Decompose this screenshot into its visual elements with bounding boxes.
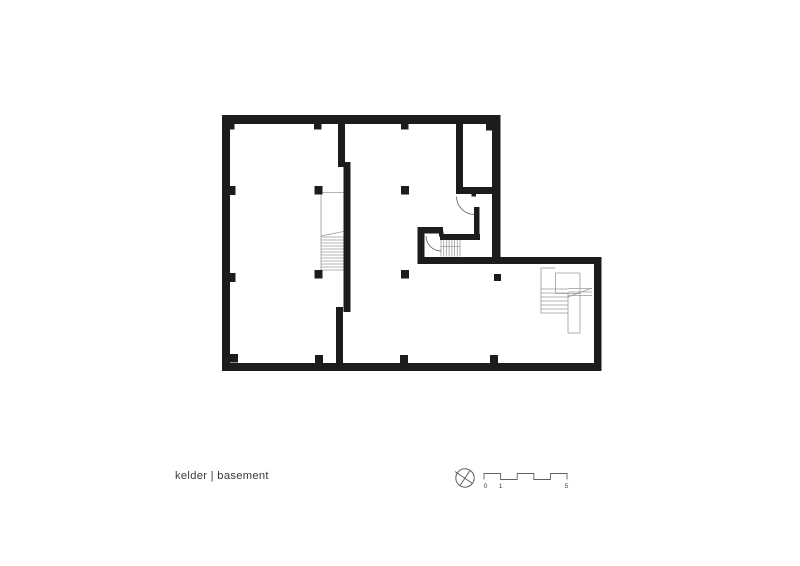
column [401, 121, 409, 130]
column [315, 355, 323, 363]
column [494, 274, 501, 281]
column [230, 354, 238, 363]
north-symbol-crossline [460, 471, 470, 486]
column [401, 270, 409, 279]
column [314, 121, 322, 130]
drawing-sheet: 0 1 5 kelder | basement [0, 0, 800, 566]
drawing-title: kelder | basement [175, 470, 269, 482]
wall [336, 307, 343, 371]
wall [440, 234, 480, 240]
scale-bar: 0 1 5 [484, 474, 569, 491]
door-jamb [472, 191, 477, 197]
north-symbol-needle [455, 472, 473, 484]
stair-line [321, 232, 344, 237]
column [229, 122, 235, 130]
wall [456, 115, 463, 194]
wall [344, 162, 351, 312]
column [486, 122, 493, 131]
wall [418, 227, 425, 264]
wall [456, 187, 501, 194]
column [230, 273, 236, 282]
column [400, 355, 408, 363]
column [315, 270, 323, 279]
column [315, 186, 323, 195]
wall [338, 115, 345, 167]
wall [222, 363, 602, 371]
wall [418, 257, 602, 264]
door-swing-arc [426, 236, 441, 251]
wall [222, 115, 230, 371]
column [490, 355, 498, 363]
floor-plan-svg: 0 1 5 [0, 0, 800, 566]
column [230, 186, 236, 195]
scale-label-1: 1 [499, 483, 503, 490]
scale-label-5: 5 [565, 483, 569, 490]
floor-plan-group [222, 115, 602, 371]
door-swing-arc [457, 197, 475, 215]
wall [594, 257, 602, 371]
north-symbol [455, 469, 474, 487]
door-jamb [439, 232, 444, 237]
scale-label-0: 0 [484, 483, 488, 490]
scale-bar-steps [484, 474, 567, 480]
column [401, 186, 409, 195]
